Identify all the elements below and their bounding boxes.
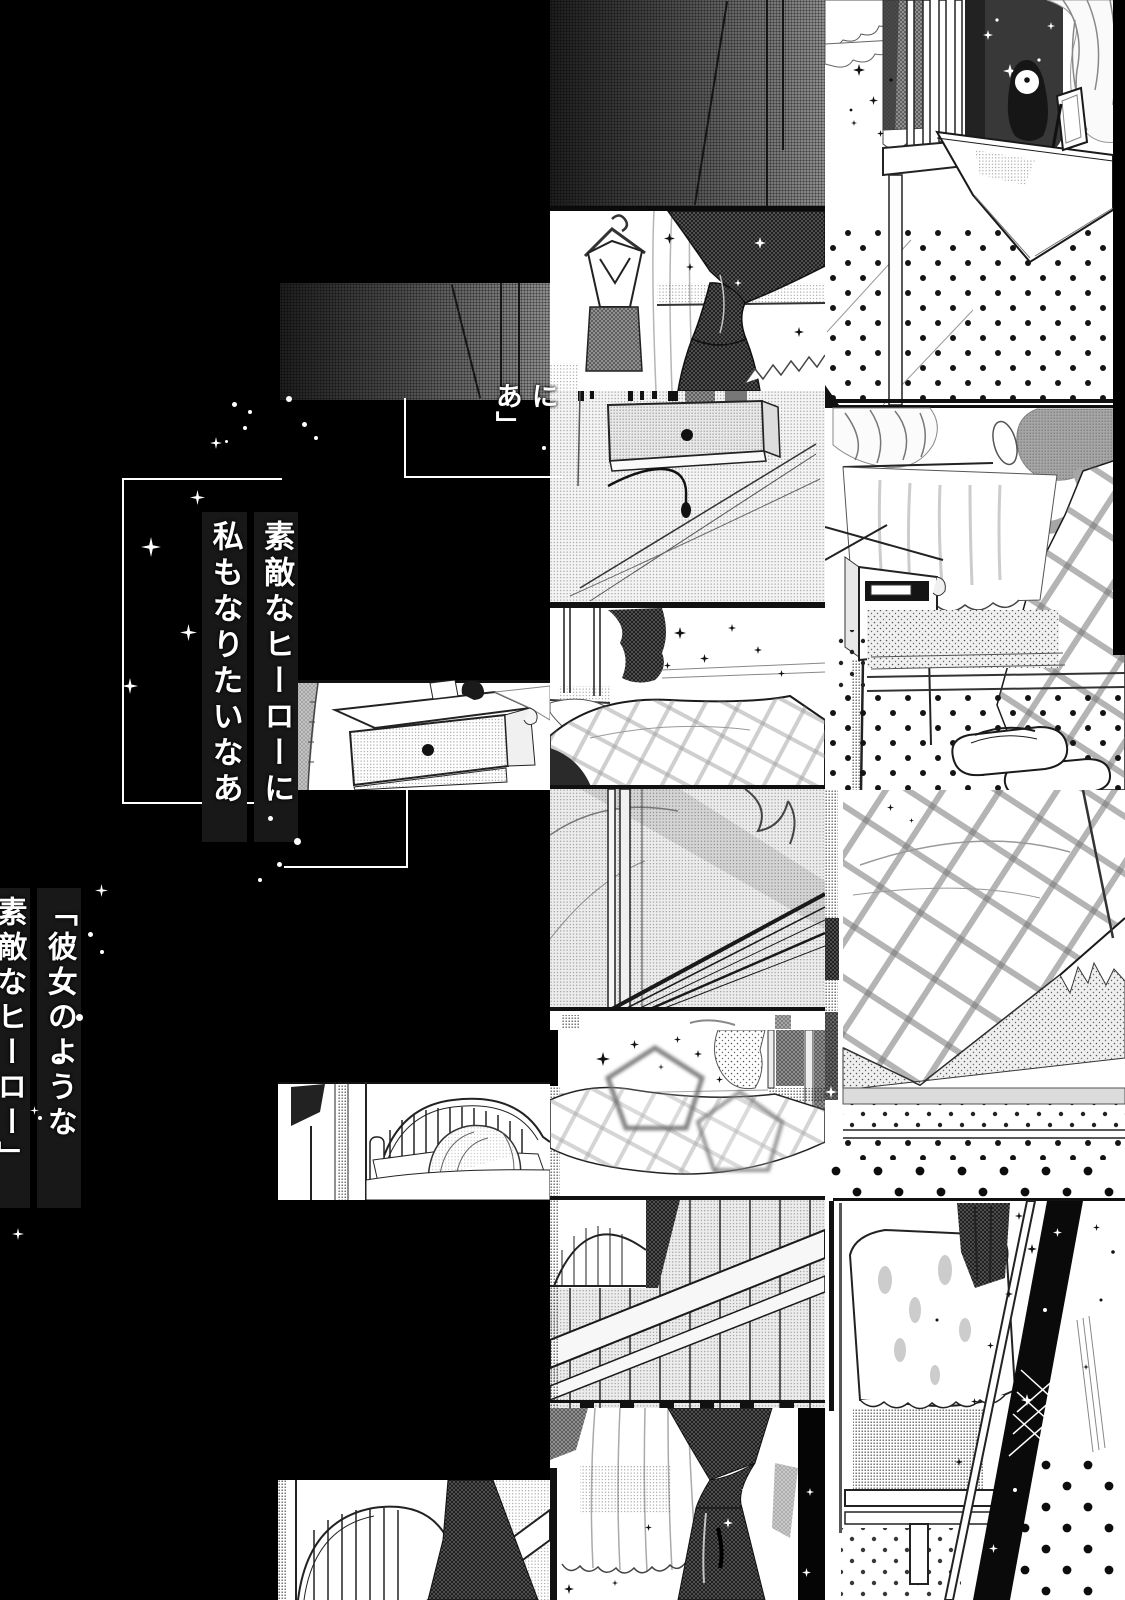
speck-dot [542,446,546,450]
book-in-drawer [871,585,911,595]
caption-line: 素敵なヒーローに [254,512,299,842]
caption-fragment: に あ」 [486,382,558,452]
panel-window-hexagons [550,1030,825,1200]
panel-cat-bedskirt-slippers [825,405,1125,790]
panel-dark-curtain-gradient-top [550,0,825,212]
panel-border-line [406,790,408,868]
curtain-fold-line [766,0,768,206]
caption-line: 素敵なヒーロー」 [0,888,30,1208]
caption-quote: 「彼女のような 素敵なヒーロー」 [0,888,81,1208]
curtain-fold-line [451,284,481,398]
drawer-knob [681,429,693,441]
speck-dot [100,950,104,954]
caption-line: 私もなりたいなあ [202,512,247,842]
panel-window-plaid-pillow [550,608,825,789]
panel-curtain-tied-bottom [550,1408,825,1600]
panel-headboard-sleeping [278,1082,550,1200]
sparkle-icon [95,884,108,897]
panel-uniform-hanger-curtain [550,211,825,391]
panel-nightstand [280,680,550,790]
small-frame [430,680,458,699]
speck-dot [76,1014,83,1021]
speck-dot [243,426,247,430]
sparkle-icon [122,678,138,694]
panel-drawer-closeup [550,391,825,608]
caption-monologue: 素敵なヒーローに 私もなりたいなあ [195,512,298,842]
speck-dot [268,816,273,821]
speck-dot [302,422,307,427]
hanging-cloth [883,0,929,149]
panel-bed-pillow-rails [550,789,825,1030]
sparkle-icon [190,490,205,505]
curtain-fold-line [694,1,728,205]
plaid-blanket [550,696,825,789]
speck-dot [286,396,292,402]
panel-border-line [122,478,282,480]
speck-dot [314,436,318,440]
polka-dots [843,1140,1125,1160]
headboard-corner [550,1200,680,1288]
speck-dot [38,1116,42,1120]
drawer-front [608,401,780,471]
caption-line: 「彼女のような [37,888,80,1208]
caption-line: あ」 [490,382,522,452]
stool-leg [910,1524,928,1584]
panel-desk-penguin [825,0,1125,405]
caption-line: に [526,382,558,452]
speck-dot [294,838,301,845]
stool-crossbar [845,1490,1000,1506]
tile-gap-black-strip [1113,0,1125,655]
polka-dots-small [843,1104,1125,1128]
drawer-knob [422,744,434,756]
sparkle-icon [12,1228,24,1240]
speck-dot [248,410,252,414]
panel-border-line [122,478,124,804]
panel-plaid-over-bed [825,790,1125,1160]
panel-border-line [404,476,562,478]
speck-dot [225,440,228,443]
panel-footboard-slats [550,1200,825,1408]
penguin-eye [1024,77,1030,83]
sparkle-icon [210,437,222,449]
speck-dot [232,402,237,407]
manga-page-canvas: 素敵なヒーローに 私もなりたいなあ 「彼女のような 素敵なヒーロー」 に あ」 [0,0,1125,1600]
panel-border-line [284,866,408,868]
stool-base [853,1408,983,1490]
panel-border-line [404,398,406,478]
speck-dot [277,862,282,867]
speck-dot [258,878,262,882]
sparkle-icon [141,537,161,557]
bed-post [889,175,902,405]
panel-stool-cloth-beam [825,1160,1125,1600]
speck-dot [56,1058,61,1063]
curtain-fold-line [782,0,784,150]
trim-band [843,1088,1125,1104]
polka-dot-floor [825,1160,1125,1198]
panel-footboard-corner [278,1480,550,1600]
speck-dot [66,986,70,990]
speck-dot [88,932,93,937]
